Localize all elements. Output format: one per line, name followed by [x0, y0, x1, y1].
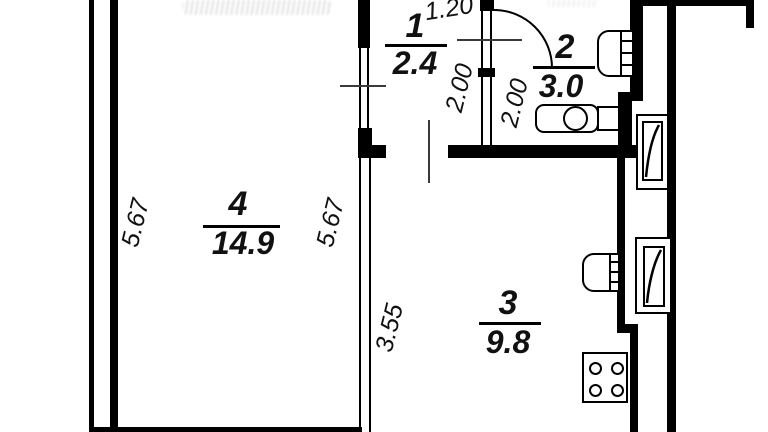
- toilet-circle: [563, 106, 588, 131]
- vent-shaft-upper-curve: [644, 123, 661, 179]
- wall-room4-room3-partition: [359, 158, 371, 432]
- room-4-area: 14.9: [212, 227, 274, 259]
- wall-left-inner: [110, 0, 118, 432]
- kitchen-sink-tick-3: [609, 281, 618, 283]
- scan-smudge-small: [548, 0, 598, 7]
- stove-burner-2: [611, 362, 624, 375]
- vent-shaft-upper-icon: [636, 114, 669, 190]
- room-2-area: 3.0: [539, 70, 583, 102]
- washbasin-tick-2: [620, 52, 632, 54]
- toilet-tank-icon: [597, 106, 620, 131]
- wall-bath-right-lower: [618, 97, 632, 158]
- washbasin-tick-3: [620, 64, 632, 66]
- wall-right-outer: [667, 0, 676, 432]
- wall-room1-room2-top: [480, 0, 494, 11]
- floor-plan: 1 2.4 2 3.0 3 9.8 4 14.9 1.20 2.00 2.00 …: [0, 0, 768, 432]
- stove-burner-1: [589, 362, 602, 375]
- wall-room1-room2-jamb: [478, 68, 495, 77]
- wall-kitchen-right-lower: [630, 330, 638, 432]
- wall-top-right-stub-h: [643, 0, 754, 6]
- dim-entry-width: 1.20: [423, 0, 475, 25]
- dim-room1-depth: 2.00: [442, 61, 478, 114]
- dim-tick-kitchen-opening: [428, 120, 430, 183]
- kitchen-sink-icon: [582, 253, 620, 292]
- washbasin-icon: [597, 30, 634, 77]
- scan-smudge: [182, 0, 332, 15]
- wall-bottom-left: [89, 427, 362, 432]
- dim-left-height: 5.67: [118, 196, 154, 249]
- wall-hall-kitchen-right: [448, 145, 638, 158]
- room-3-area: 9.8: [486, 326, 530, 358]
- dim-room2-depth: 2.00: [497, 76, 533, 129]
- wall-hall-kitchen-left: [358, 145, 386, 158]
- kitchen-sink-tick-1: [609, 261, 618, 263]
- stove-icon: [582, 352, 628, 403]
- stove-burner-4: [611, 384, 624, 397]
- wall-left-outer: [89, 0, 94, 432]
- room-1-area: 2.4: [393, 47, 437, 79]
- vent-shaft-lower-inner: [643, 246, 665, 307]
- wall-top-right-stub-v: [746, 0, 754, 28]
- vent-shaft-lower-curve: [645, 248, 663, 305]
- vent-shaft-lower-icon: [635, 237, 672, 314]
- dim-room3-height: 3.55: [372, 301, 408, 354]
- stove-burner-3: [589, 384, 602, 397]
- wall-room1-room2-lower: [481, 77, 492, 145]
- wall-room4-room1-top: [358, 0, 370, 48]
- dim-tick-room1-left: [340, 85, 386, 87]
- dim-room4-height: 5.67: [313, 196, 349, 249]
- wall-room4-room1-door-opening: [359, 46, 369, 130]
- washbasin-tick-1: [620, 40, 632, 42]
- room-4-number: 4: [229, 187, 248, 221]
- room-2-number: 2: [556, 30, 575, 64]
- dim-tick-room1-room2: [457, 39, 522, 41]
- room-3-number: 3: [499, 286, 518, 320]
- wall-kitchen-right-upper: [617, 158, 625, 328]
- kitchen-sink-tick-2: [609, 271, 618, 273]
- vent-shaft-upper-inner: [642, 121, 663, 181]
- room-1-number: 1: [406, 9, 425, 43]
